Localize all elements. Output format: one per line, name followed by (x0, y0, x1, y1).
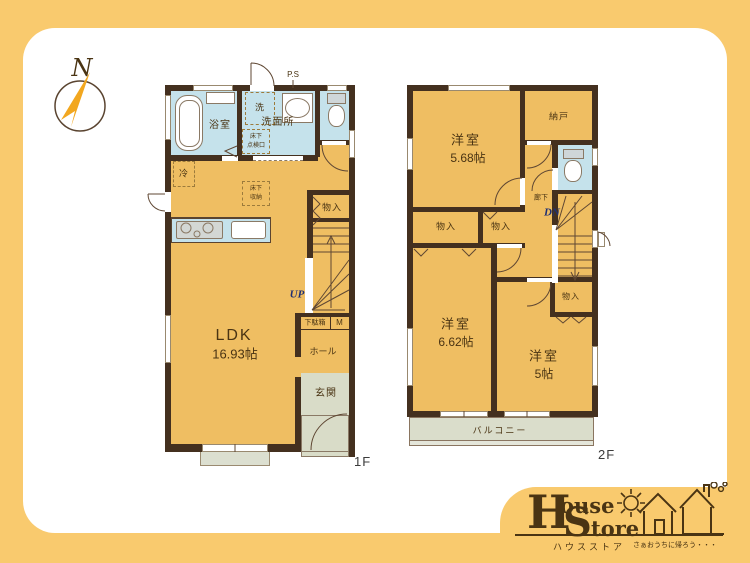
door-gap (222, 156, 238, 161)
wall (295, 377, 301, 452)
logo-store-rest: tore (591, 518, 639, 539)
meter-label: M (336, 319, 344, 327)
toilet-bowl-icon (328, 105, 345, 127)
wall (165, 85, 171, 452)
bath-counter-icon (206, 92, 235, 104)
underfloor-hatch (242, 129, 270, 154)
window (592, 148, 598, 166)
underfloor-storage (242, 181, 270, 206)
kitchen-sink-icon (231, 221, 266, 239)
door-gap (520, 178, 525, 205)
wall (553, 190, 592, 194)
hall-label: ホール (309, 348, 336, 357)
stairs-down-label: DN (544, 208, 560, 219)
wall (478, 212, 483, 243)
entrance-label: 玄関 (315, 389, 337, 399)
room-a-label: 洋室 (451, 134, 481, 147)
closet-2f-label: 物入 (436, 223, 456, 232)
toilet-bowl-icon (564, 160, 582, 182)
wall (307, 190, 355, 195)
wall (307, 190, 313, 260)
vanity-basin (285, 98, 310, 118)
room-ldk-size: 16.93帖 (212, 348, 258, 361)
shoebox-divider (330, 317, 331, 329)
wall (407, 411, 598, 417)
sliding-door-gap (253, 156, 303, 161)
door-gap (497, 244, 522, 248)
underfloor-storage-label1: 床下 (250, 186, 262, 192)
floor2-area (413, 91, 592, 411)
bathtub-inner (179, 100, 200, 147)
stair-landing-edge (552, 225, 558, 283)
window (407, 328, 413, 386)
logo-tagline: さぁおうちに帰ろう・・・ (633, 540, 717, 550)
ldk-terrace-step (200, 450, 270, 466)
room-c-label: 洋室 (529, 350, 559, 363)
compass-icon: N (44, 50, 124, 138)
window (202, 444, 268, 452)
room-b-size: 6.62帖 (438, 336, 473, 348)
compass-north-label: N (71, 54, 94, 82)
floor1-label: 1F (354, 455, 371, 468)
stairs-up-label: UP (290, 290, 305, 301)
door-gap (527, 278, 552, 282)
window (349, 130, 355, 158)
room-b-label: 洋室 (441, 318, 471, 331)
flyer-background: N (0, 0, 750, 563)
room-c-size: 5帖 (535, 368, 554, 380)
window (193, 85, 233, 91)
balcony-rail (410, 440, 593, 445)
toilet-tank-icon (327, 93, 346, 104)
houses-icon (636, 482, 728, 538)
entrance-porch (301, 415, 349, 457)
pipe-space-label: P.S (287, 71, 299, 79)
service-door-gap (165, 192, 171, 212)
window (327, 85, 347, 91)
fridge-label: 冷 (179, 170, 189, 179)
balcony-label: バルコニー (473, 427, 528, 436)
plan-card (23, 28, 727, 533)
logo-store-initial: S (563, 503, 592, 543)
room-a-size: 5.68帖 (450, 152, 485, 164)
closet-2f-label: 物入 (562, 293, 580, 301)
toilet-tank-icon (563, 149, 584, 159)
storeroom-label: 納戸 (549, 113, 569, 122)
exterior-door-gap (250, 85, 274, 91)
window (165, 95, 171, 140)
wall (413, 207, 525, 212)
door-gap (322, 141, 346, 145)
window (448, 85, 510, 91)
window (440, 411, 488, 417)
stair-landing-edge (305, 258, 313, 313)
wall (491, 248, 497, 411)
closet-1f-label: 物入 (322, 204, 342, 213)
room-washroom-label: 洗面所 (262, 118, 295, 128)
door-gap (552, 168, 558, 190)
logo-katakana: ハウスストア (553, 540, 625, 553)
wall (315, 91, 320, 157)
underfloor-storage-label2: 収納 (250, 195, 262, 201)
window (504, 411, 550, 417)
corridor-label: 廊下 (534, 195, 548, 202)
underfloor-hatch-label1: 床下 (250, 134, 262, 140)
window (165, 315, 171, 363)
wall (313, 218, 349, 222)
floor2-label: 2F (598, 448, 615, 461)
room-ldk-label: LDK (215, 328, 252, 344)
window-stub (598, 232, 605, 247)
underfloor-hatch-label2: 点検口 (247, 143, 265, 149)
window (592, 346, 598, 386)
porch-step-line (302, 451, 348, 452)
wall (550, 312, 592, 317)
bathtub-icon (175, 95, 203, 151)
washer-label: 洗 (255, 104, 265, 113)
closet-2f-label: 物入 (491, 223, 511, 232)
shoebox-label: 下駄箱 (305, 320, 326, 327)
stove-icon (176, 221, 223, 239)
window (407, 138, 413, 170)
room-bath-label: 浴室 (209, 121, 231, 131)
door-gap (527, 141, 551, 145)
